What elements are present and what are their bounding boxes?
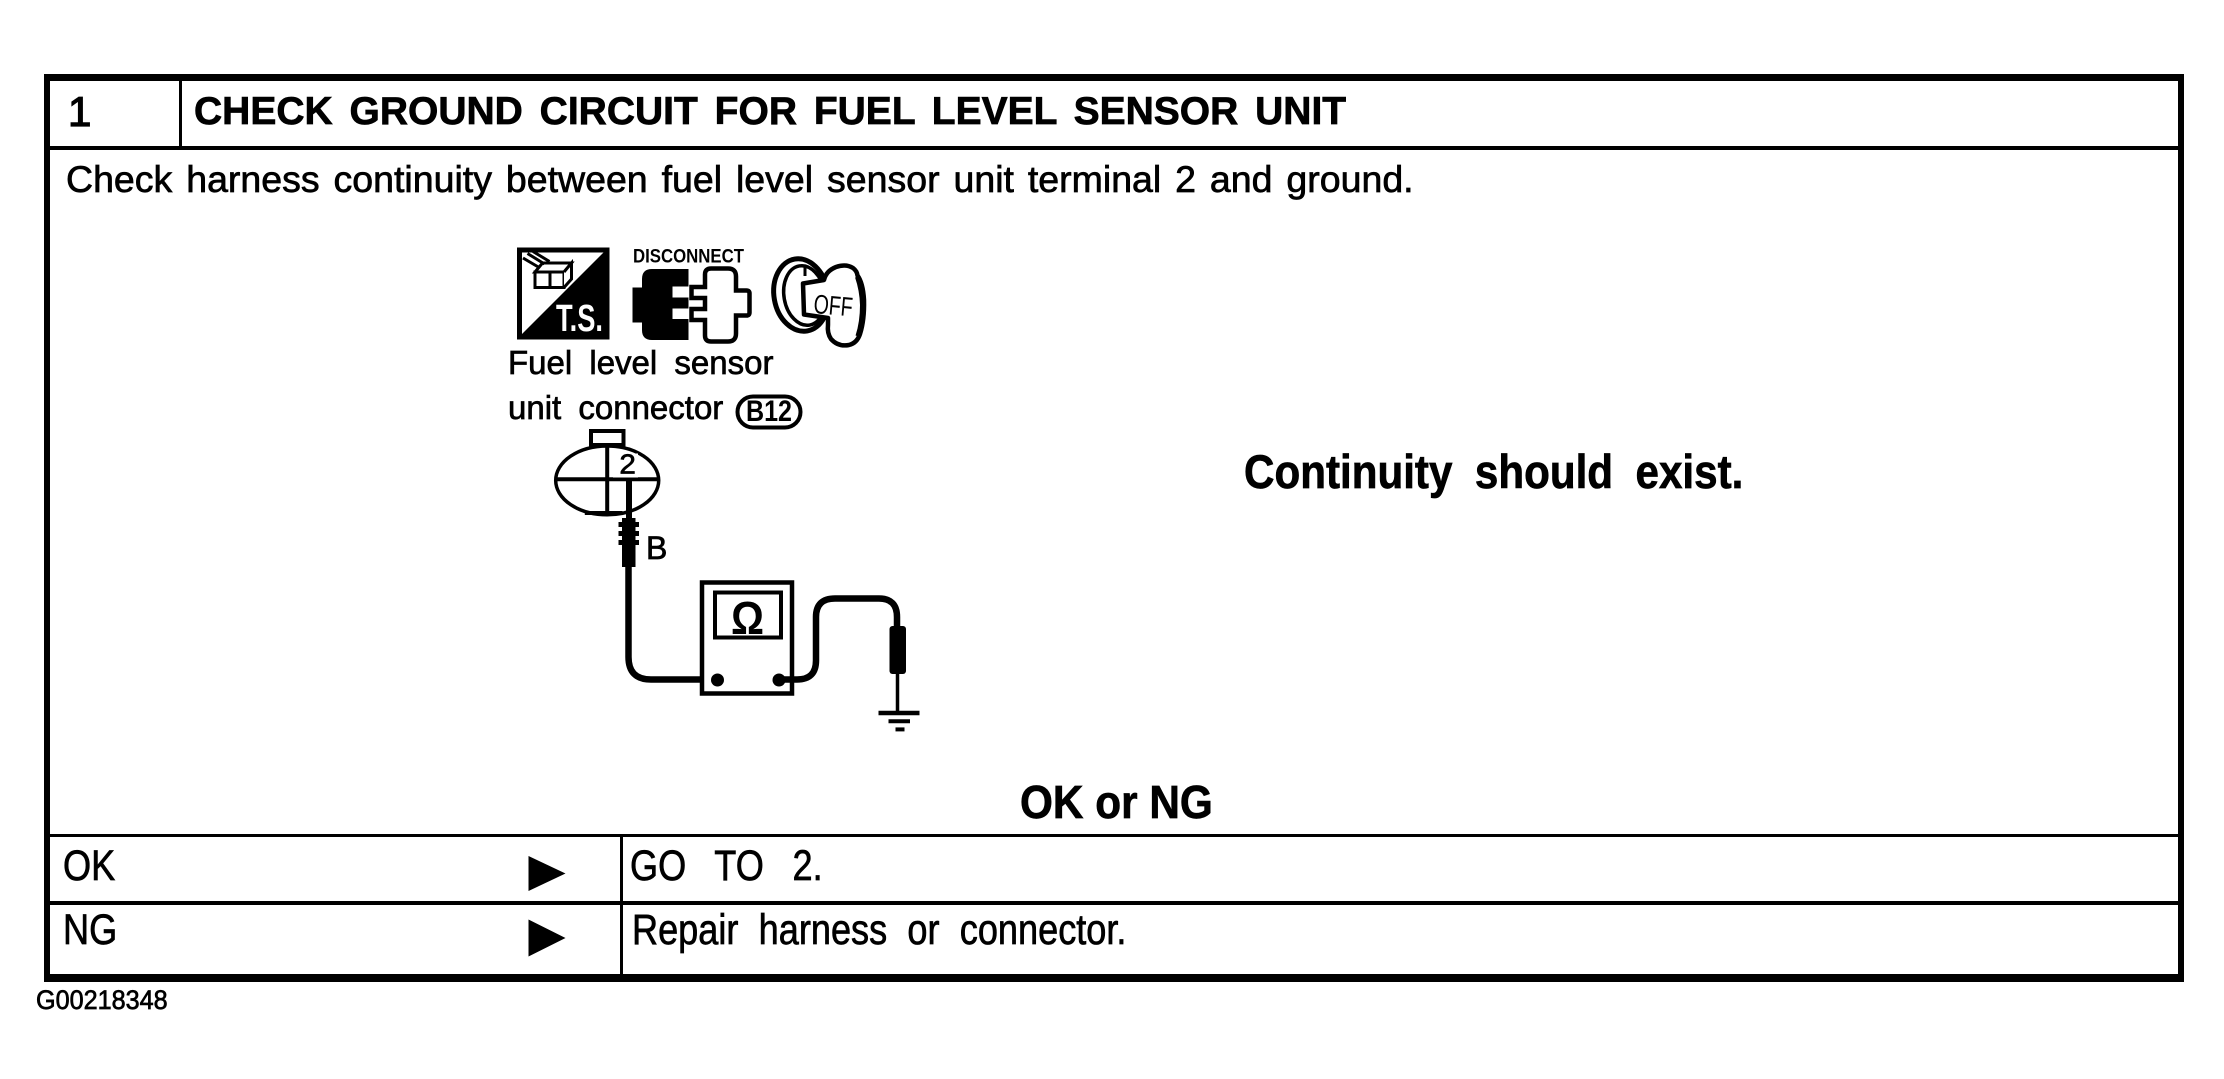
svg-text:OFF: OFF bbox=[812, 289, 853, 322]
svg-text:B: B bbox=[646, 530, 667, 566]
svg-text:Ω: Ω bbox=[731, 592, 764, 644]
svg-text:DISCONNECT: DISCONNECT bbox=[633, 247, 744, 268]
svg-text:B12: B12 bbox=[746, 395, 792, 428]
svg-text:T.S.: T.S. bbox=[556, 298, 603, 340]
svg-text:2: 2 bbox=[619, 449, 636, 480]
